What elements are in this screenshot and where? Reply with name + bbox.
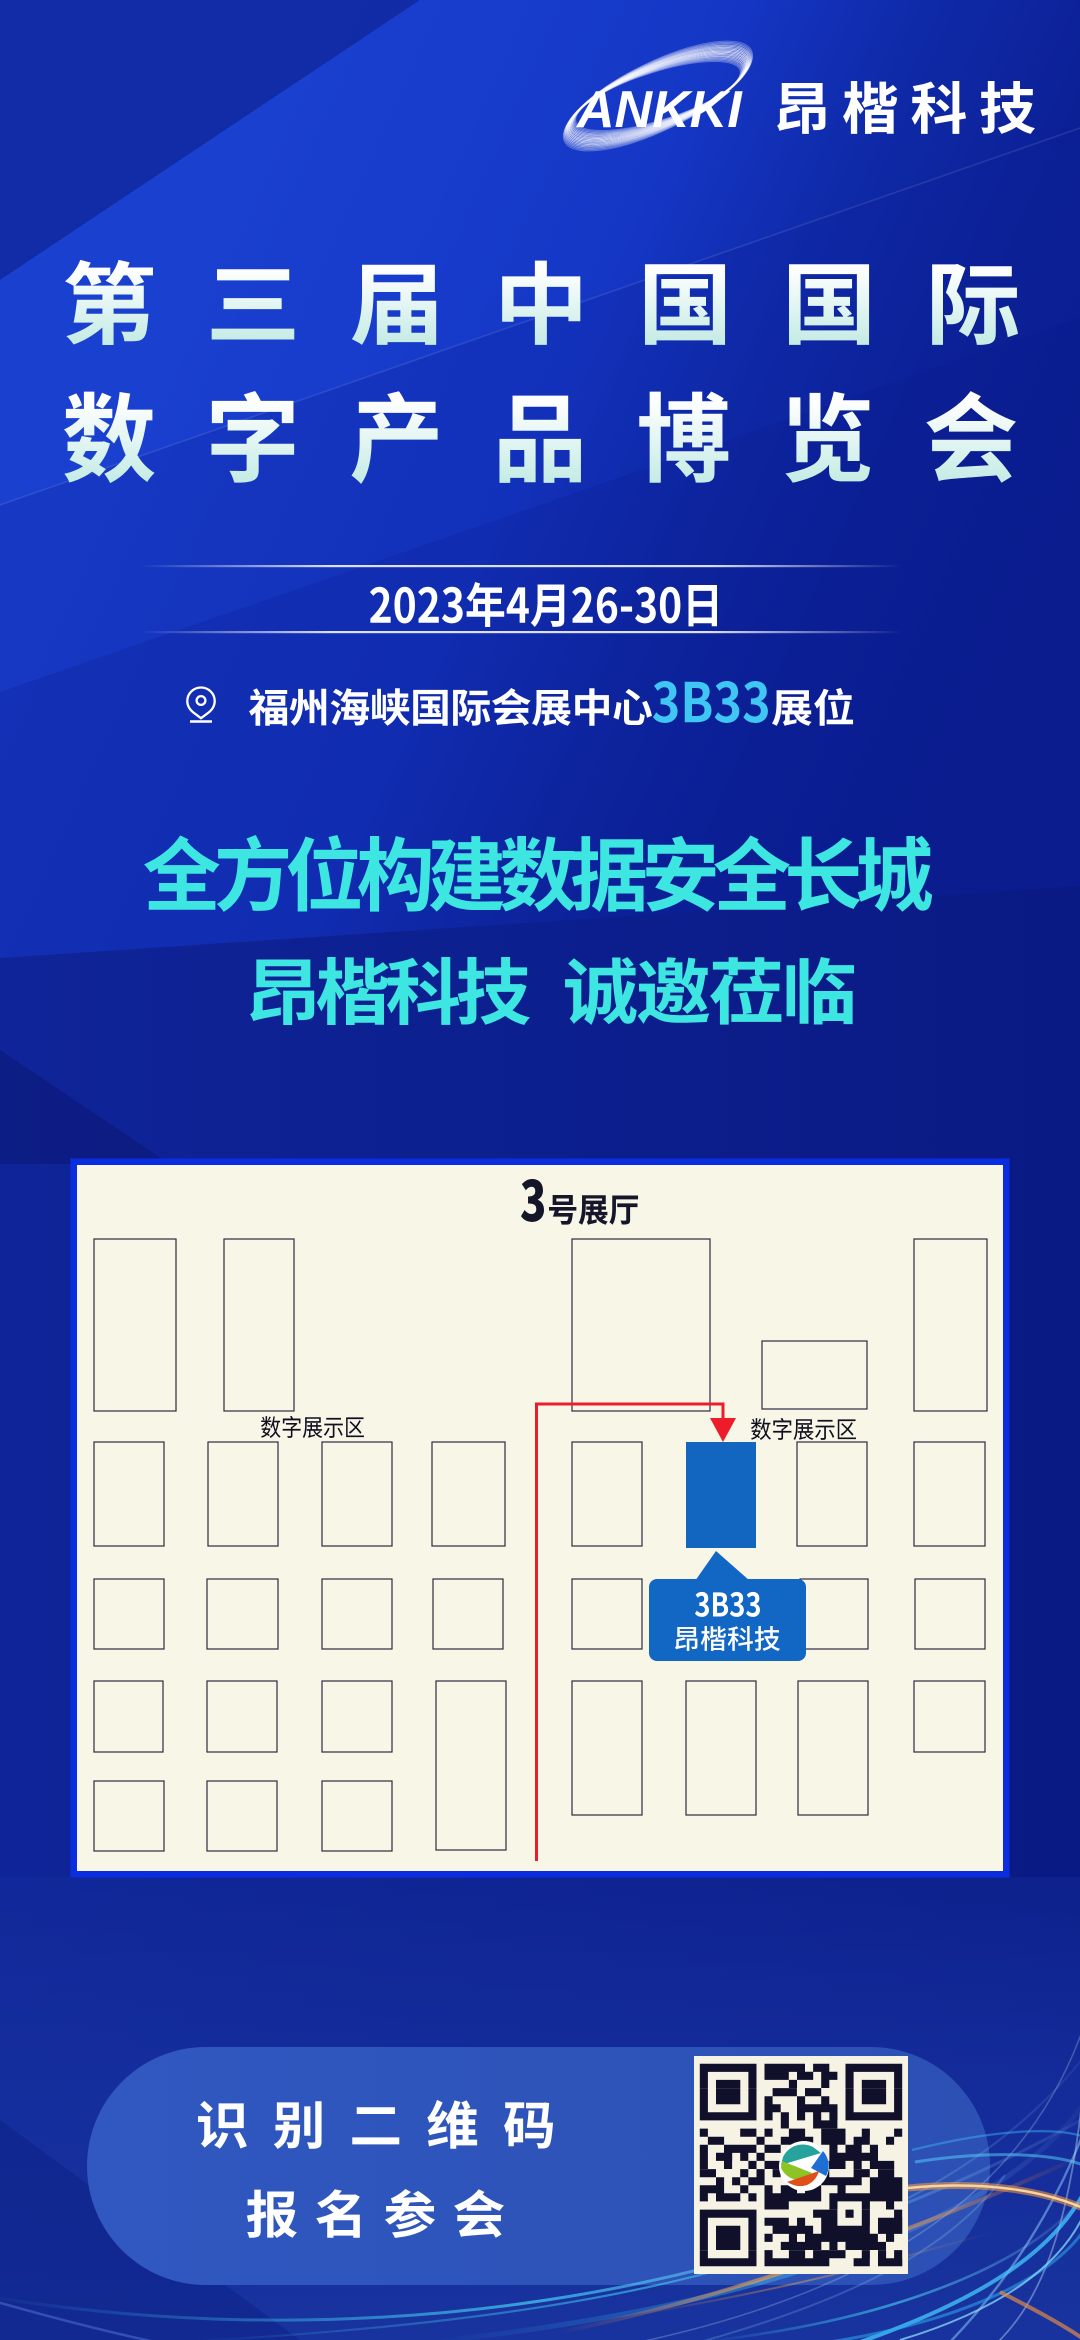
svg-text:ANKKI: ANKKI: [575, 81, 743, 139]
